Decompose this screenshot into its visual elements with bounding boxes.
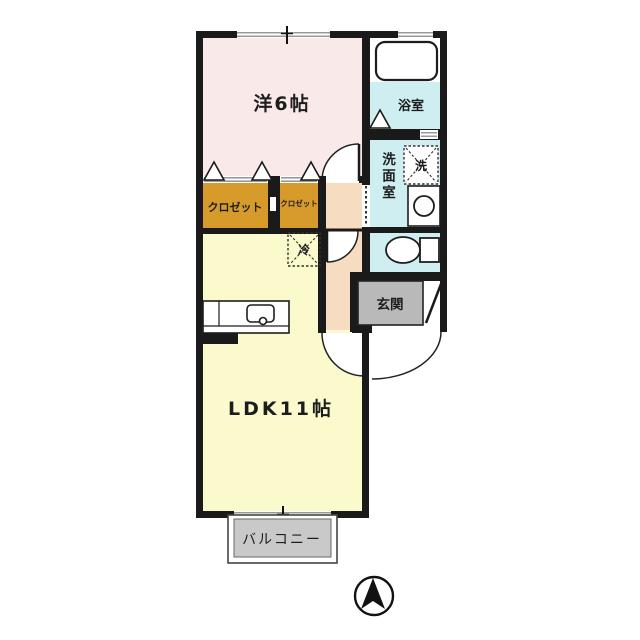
counter (203, 301, 289, 333)
window-line (421, 132, 437, 134)
bathtub (376, 42, 437, 80)
wall-segment (350, 272, 358, 332)
wall-segment (359, 176, 364, 183)
entrance-door-arc (372, 332, 441, 379)
wall-segment (362, 227, 447, 233)
vanity-sink (408, 186, 440, 226)
wall-segment (350, 272, 447, 281)
window-line (398, 36, 433, 38)
wall-segment (362, 31, 370, 185)
bathroom-label: 浴室 (398, 98, 424, 114)
compass-icon (355, 577, 393, 615)
balcony-label: バルコニー (242, 532, 322, 548)
closet-small-label: クロゼット (280, 198, 318, 208)
closet-large-label: クロゼット (208, 200, 263, 214)
kitchen-faucet (260, 318, 267, 325)
window-line (398, 32, 433, 34)
wall-segment (440, 31, 447, 332)
washer-label: 洗 (415, 158, 427, 173)
bedroom-label: 洋6帖 (253, 92, 310, 115)
window-line (421, 136, 437, 138)
closet-divider-slot (270, 197, 276, 211)
washroom-label: 洗面室 (382, 151, 396, 201)
floor-plan-svg: 洋6帖 LDK11帖 浴室 洗面室 洗 冷 クロゼット クロゼット 玄関 バルコ… (0, 0, 640, 640)
wall-segment (196, 31, 203, 518)
wall-segment (362, 325, 369, 518)
window-line (237, 36, 330, 38)
wall-segment (362, 227, 370, 272)
entrance-door-leaf (426, 284, 441, 323)
kitchen-partition (203, 333, 238, 344)
fridge-label: 冷 (298, 242, 310, 257)
wall-segment (318, 176, 326, 333)
washroom-window (420, 130, 438, 139)
genkan-label: 玄関 (377, 296, 404, 313)
toilet-bowl (386, 237, 420, 263)
toilet-tank (420, 238, 439, 262)
toilet-icon (386, 237, 439, 263)
sink-bowl-icon (414, 196, 434, 216)
floor-plan: 洋6帖 LDK11帖 浴室 洗面室 洗 冷 クロゼット クロゼット 玄関 バルコ… (0, 0, 640, 640)
ldk-label: LDK11帖 (228, 397, 334, 420)
